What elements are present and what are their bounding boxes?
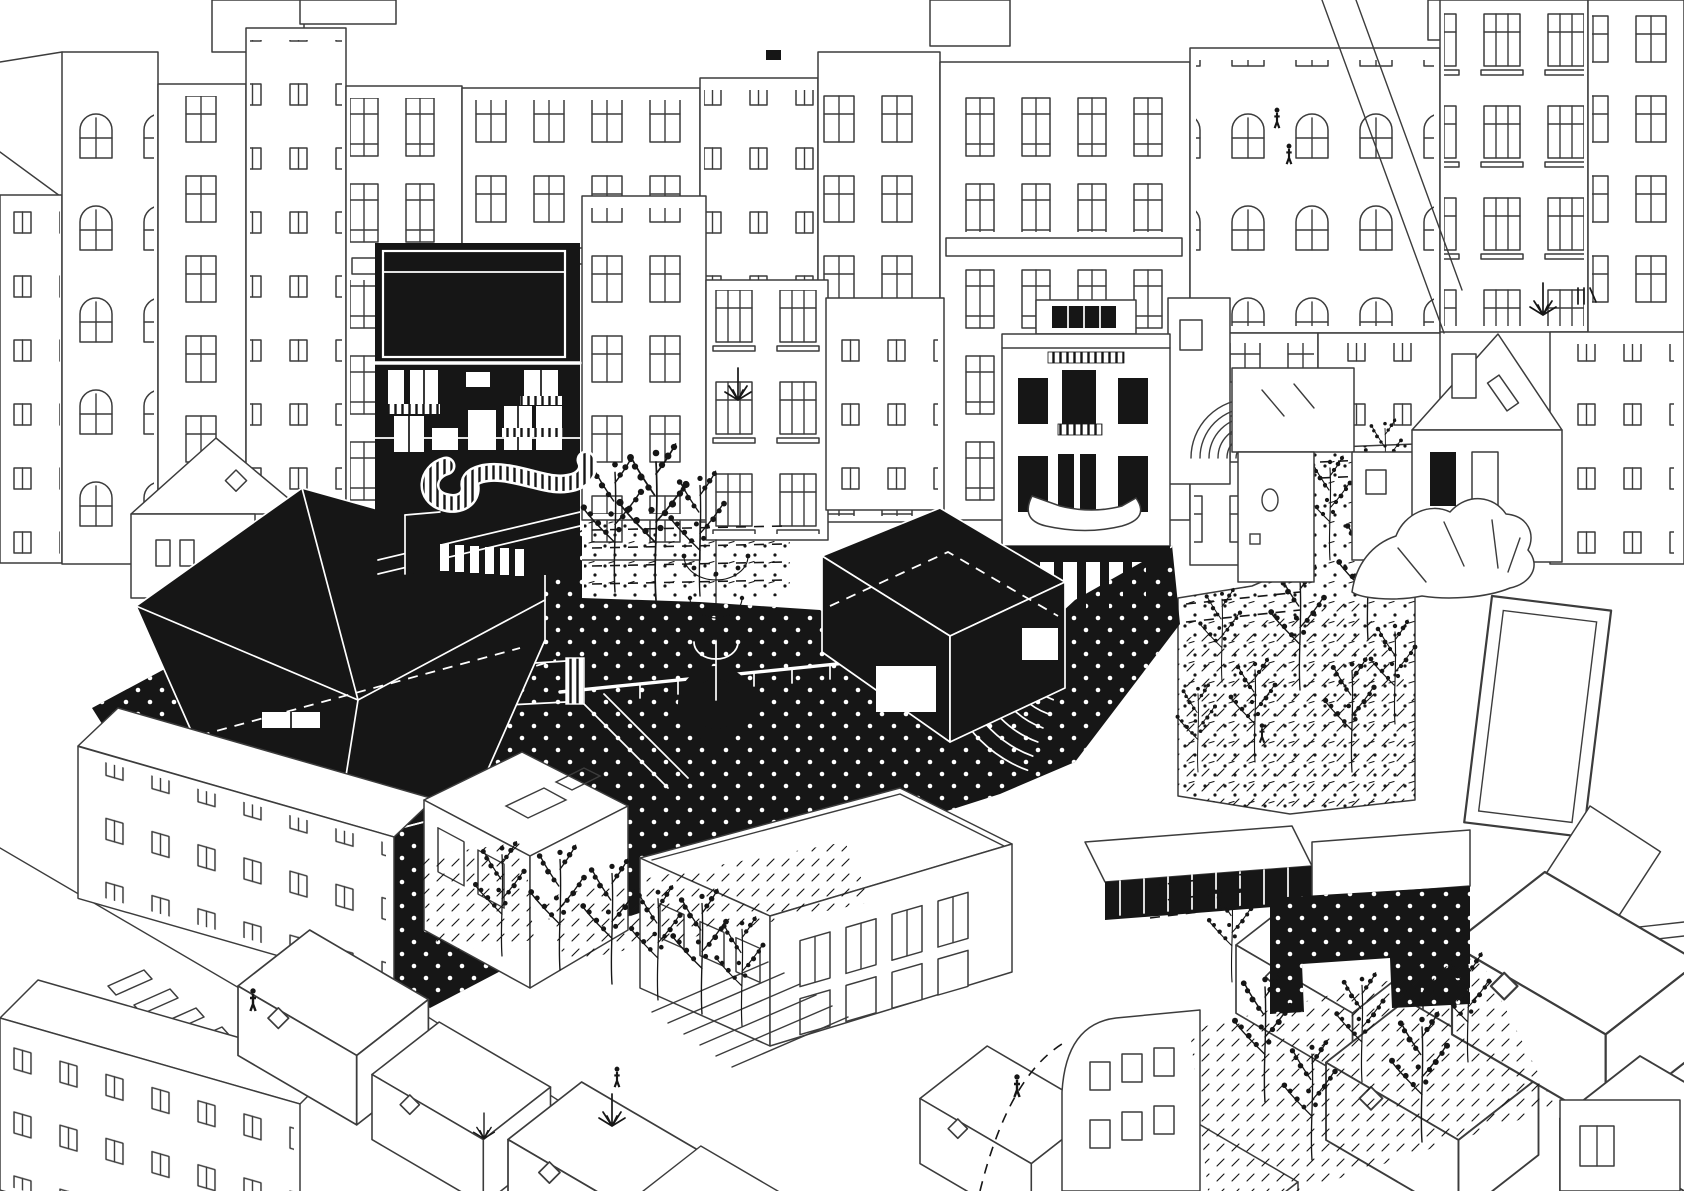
pavilion-opening [1022, 628, 1058, 660]
city-axonometric-drawing: Black-and-white axonometric architectura… [0, 0, 1684, 1191]
chimney [1452, 354, 1476, 398]
kiosk [405, 512, 440, 574]
black-tower-facade [375, 243, 588, 576]
black-window-accent [766, 50, 781, 60]
pavilion-opening [876, 666, 936, 712]
illustration-canvas: Black-and-white axonometric architectura… [0, 0, 1684, 1191]
striped-railing [1048, 352, 1124, 363]
